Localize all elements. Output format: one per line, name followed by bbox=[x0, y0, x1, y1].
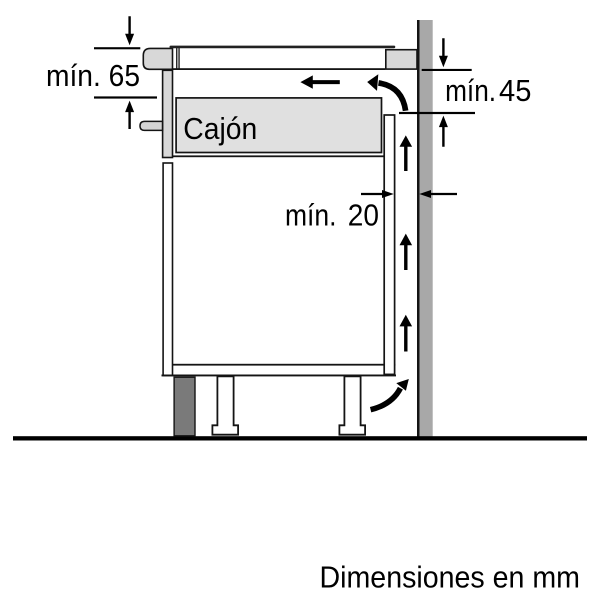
svg-text:Dimensiones en mm: Dimensiones en mm bbox=[320, 560, 581, 594]
svg-text:mín. 65: mín. 65 bbox=[46, 59, 140, 93]
svg-text:45: 45 bbox=[499, 74, 531, 108]
svg-text:mín.: mín. bbox=[445, 74, 496, 108]
svg-text:mín.: mín. bbox=[285, 198, 337, 232]
svg-text:20: 20 bbox=[348, 198, 379, 232]
svg-text:Cajón: Cajón bbox=[183, 112, 257, 146]
